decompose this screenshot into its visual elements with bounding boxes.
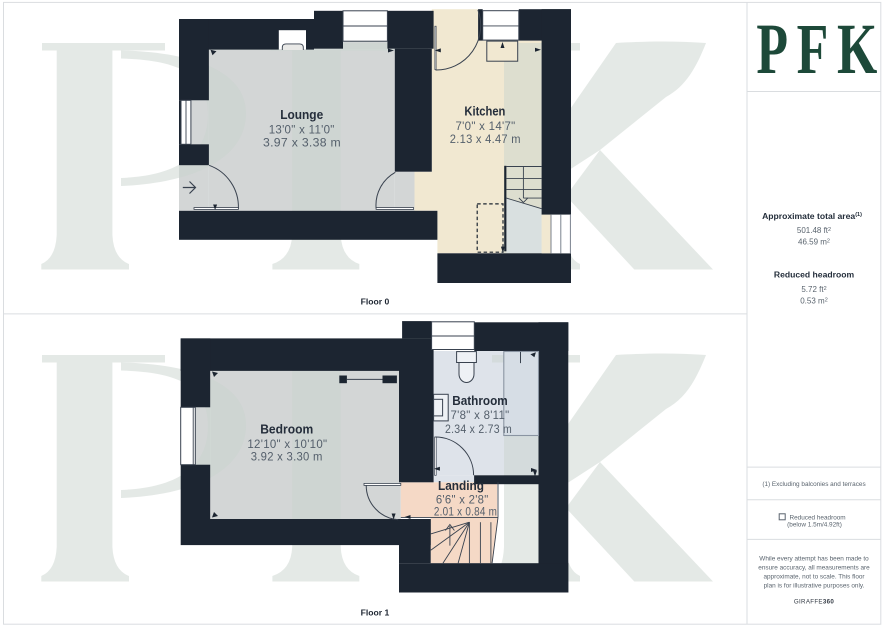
- svg-text:(below 1.5m/4.92ft): (below 1.5m/4.92ft): [787, 522, 842, 529]
- svg-text:5.72 ft2: 5.72 ft2: [801, 285, 826, 294]
- svg-text:Bedroom: Bedroom: [260, 421, 313, 436]
- svg-text:Landing: Landing: [438, 478, 484, 493]
- svg-text:(1) Excluding balconies and te: (1) Excluding balconies and terraces: [762, 481, 865, 488]
- svg-text:2.13 x 4.47 m: 2.13 x 4.47 m: [450, 132, 521, 146]
- svg-text:Reduced headroom: Reduced headroom: [790, 515, 846, 522]
- svg-text:7'8" x 8'11": 7'8" x 8'11": [451, 408, 510, 422]
- svg-text:PFK: PFK: [756, 9, 886, 89]
- svg-text:501.48 ft2: 501.48 ft2: [797, 226, 831, 235]
- svg-text:2.34 x 2.73 m: 2.34 x 2.73 m: [445, 422, 512, 436]
- svg-text:3.92 x 3.30 m: 3.92 x 3.30 m: [251, 450, 323, 464]
- svg-text:0.53 m2: 0.53 m2: [800, 297, 828, 306]
- svg-text:GIRAFFE360: GIRAFFE360: [794, 598, 834, 605]
- svg-text:Floor 1: Floor 1: [361, 607, 390, 617]
- svg-text:Reduced headroom: Reduced headroom: [774, 269, 855, 279]
- svg-text:2.01 x 0.84 m: 2.01 x 0.84 m: [434, 505, 497, 519]
- svg-text:46.59 m2: 46.59 m2: [798, 238, 830, 247]
- svg-text:plan is for illustrative purpo: plan is for illustrative purposes only.: [764, 582, 865, 589]
- svg-text:approximate, not to scale. Thi: approximate, not to scale. This floor: [763, 573, 865, 580]
- svg-text:Bathroom: Bathroom: [452, 393, 508, 408]
- svg-text:Lounge: Lounge: [280, 107, 323, 122]
- svg-text:ensure accuracy, all measureme: ensure accuracy, all measurements are: [758, 564, 870, 571]
- svg-text:Kitchen: Kitchen: [464, 103, 505, 118]
- svg-text:Floor 0: Floor 0: [361, 297, 390, 307]
- svg-text:Approximate total area(1): Approximate total area(1): [762, 211, 862, 221]
- svg-text:While every attempt has been m: While every attempt has been made to: [759, 555, 869, 562]
- svg-text:3.97 x 3.38 m: 3.97 x 3.38 m: [263, 135, 341, 149]
